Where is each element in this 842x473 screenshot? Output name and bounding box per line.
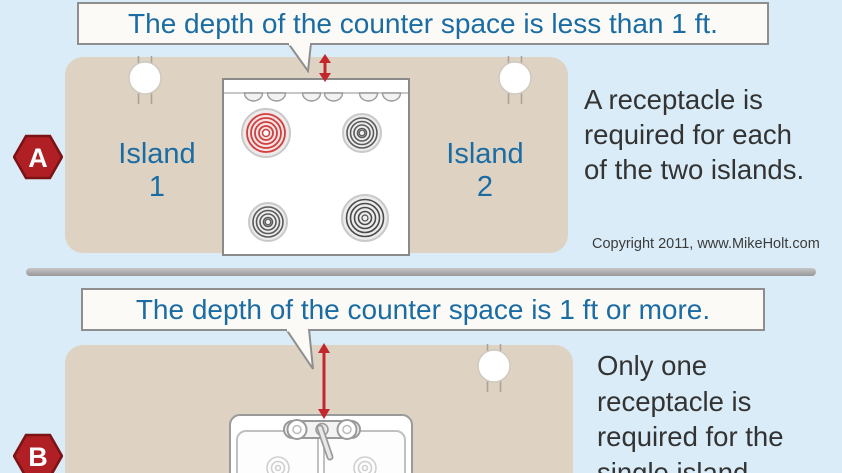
callout-b-tail bbox=[281, 329, 319, 371]
callout-b: The depth of the counter space is 1 ft o… bbox=[81, 288, 765, 331]
island-2-label: Island 2 bbox=[425, 138, 545, 204]
depth-arrow-icon-a bbox=[315, 54, 335, 82]
badge-a-letter: A bbox=[13, 135, 63, 181]
receptacle-icon-island2 bbox=[498, 56, 532, 106]
badge-b-letter: B bbox=[13, 434, 63, 473]
section-divider bbox=[26, 268, 816, 276]
callout-a-tail bbox=[282, 43, 318, 73]
badge-b-hexagon-icon: B bbox=[13, 433, 63, 473]
note-b: Only one receptacle is required for the … bbox=[597, 348, 842, 473]
callout-b-text: The depth of the counter space is 1 ft o… bbox=[136, 294, 710, 326]
receptacle-icon-island1 bbox=[128, 56, 162, 106]
island-1-label: Island 1 bbox=[97, 138, 217, 204]
note-a: A receptacle is required for each of the… bbox=[584, 82, 842, 187]
cooktop-icon bbox=[222, 78, 410, 256]
receptacle-icon-island-b bbox=[477, 344, 511, 394]
callout-a: The depth of the counter space is less t… bbox=[77, 2, 769, 45]
badge-a-hexagon-icon: A bbox=[13, 134, 63, 180]
callout-a-text: The depth of the counter space is less t… bbox=[128, 8, 718, 40]
diagram-canvas: The depth of the counter space is less t… bbox=[0, 0, 842, 473]
copyright-text: Copyright 2011, www.MikeHolt.com bbox=[592, 236, 820, 252]
sink-icon bbox=[229, 414, 413, 473]
